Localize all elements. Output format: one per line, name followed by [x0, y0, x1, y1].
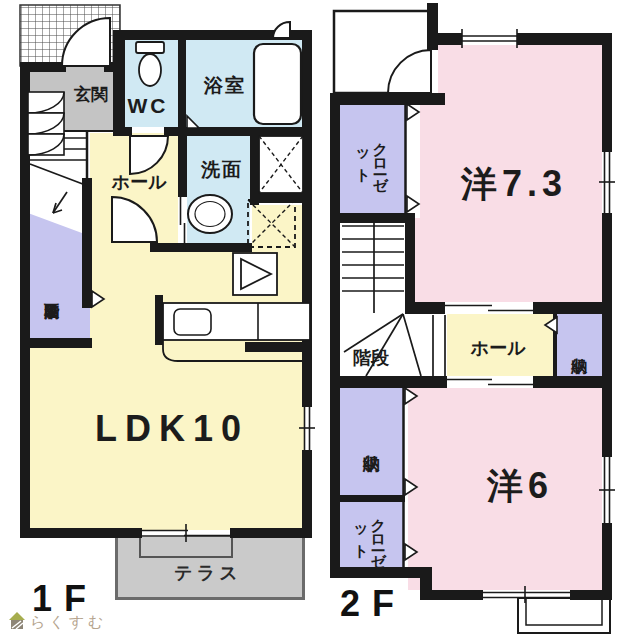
label-washroom: 洗面 — [201, 159, 243, 181]
label-western-6: 洋6 — [487, 465, 553, 506]
brand-watermark: らくすむ — [30, 613, 107, 632]
label-storage-west: 収納 — [361, 418, 381, 464]
label-closet-north: クローゼット — [355, 128, 390, 188]
closet-north-door-marker2 — [407, 196, 419, 212]
balcony-2f-south — [518, 598, 610, 633]
ldk-door-arc — [112, 197, 157, 242]
storage-west-door-marker2 — [405, 479, 417, 495]
understair-door-marker — [92, 291, 104, 307]
label-bath: 浴室 — [204, 75, 246, 97]
storage-east-door-marker — [545, 317, 557, 333]
label-storage-east: 収納 — [570, 324, 588, 366]
washer-space — [259, 136, 303, 193]
toilet — [136, 42, 164, 86]
bath-vent-arc — [273, 22, 290, 38]
label-closet-south: クローゼット — [353, 504, 388, 564]
floor-plan: 玄関 WC 浴室 洗面 ホール 階段下収納 LDK10 テラス クローゼット 洋… — [0, 0, 640, 640]
bath-door-marker — [187, 116, 199, 128]
label-hall-2f: ホール — [471, 338, 526, 359]
label-terrace: テラス — [174, 563, 241, 584]
floor2-label: 2F — [340, 583, 406, 625]
kitchen-counter — [163, 303, 310, 361]
label-under-stair-storage: 階段下収納 — [43, 242, 60, 342]
washbasin — [188, 195, 232, 233]
cupboard-symbol — [233, 253, 277, 295]
closet-south-door-marker — [405, 544, 417, 560]
label-ldk: LDK10 — [95, 408, 249, 449]
brand-house-icon — [8, 610, 26, 630]
shoe-cabinet — [28, 92, 64, 155]
label-hall-1f: ホール — [112, 172, 167, 193]
wc-door-arc — [130, 136, 168, 174]
label-wc: WC — [128, 94, 169, 118]
storage-west-door-marker — [405, 388, 417, 404]
label-western-7-3: 洋7.3 — [461, 163, 567, 204]
walls — [20, 3, 612, 600]
label-stairs-2f: 階段 — [353, 348, 389, 369]
label-genkan: 玄関 — [74, 85, 108, 105]
fridge-space — [248, 200, 295, 247]
bathtub — [254, 44, 301, 124]
closet-north-door-marker — [407, 104, 419, 120]
